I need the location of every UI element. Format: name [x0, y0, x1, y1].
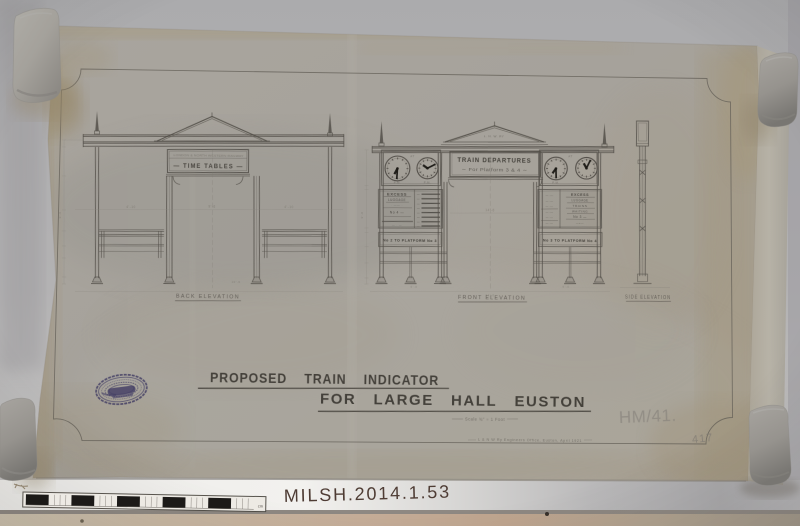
svg-text:cm: cm [258, 504, 264, 509]
